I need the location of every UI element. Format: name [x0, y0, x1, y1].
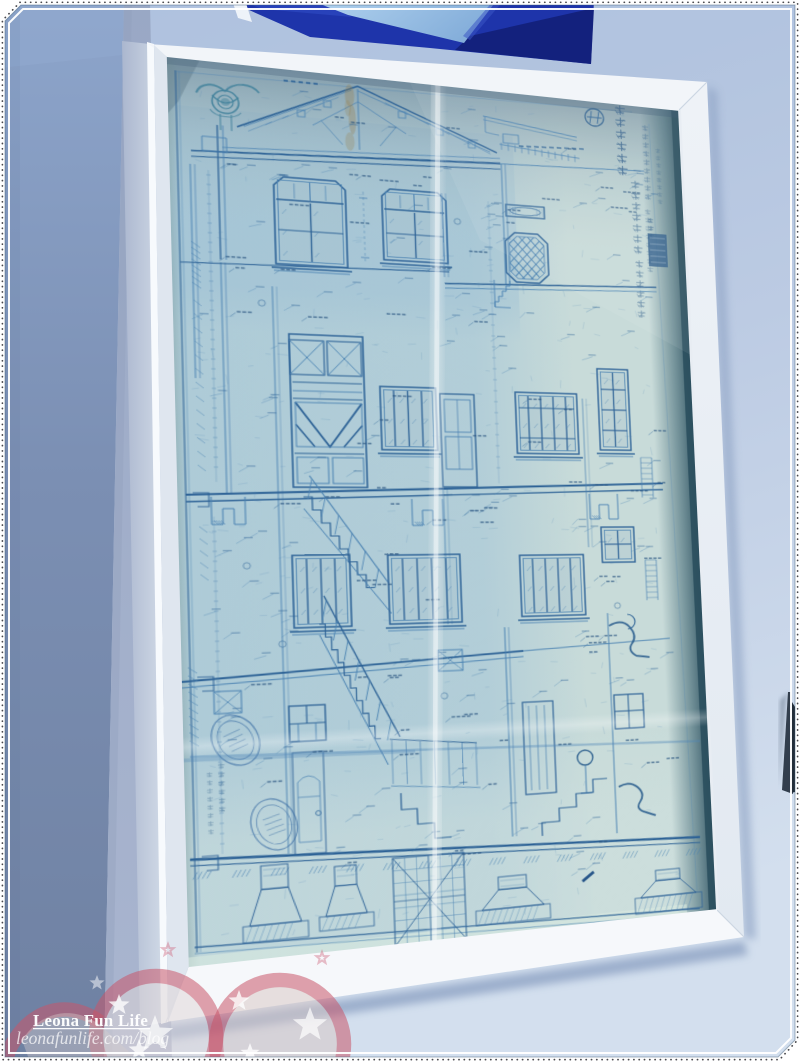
svg-text:leonafunlife.com/blog: leonafunlife.com/blog: [16, 1028, 169, 1048]
